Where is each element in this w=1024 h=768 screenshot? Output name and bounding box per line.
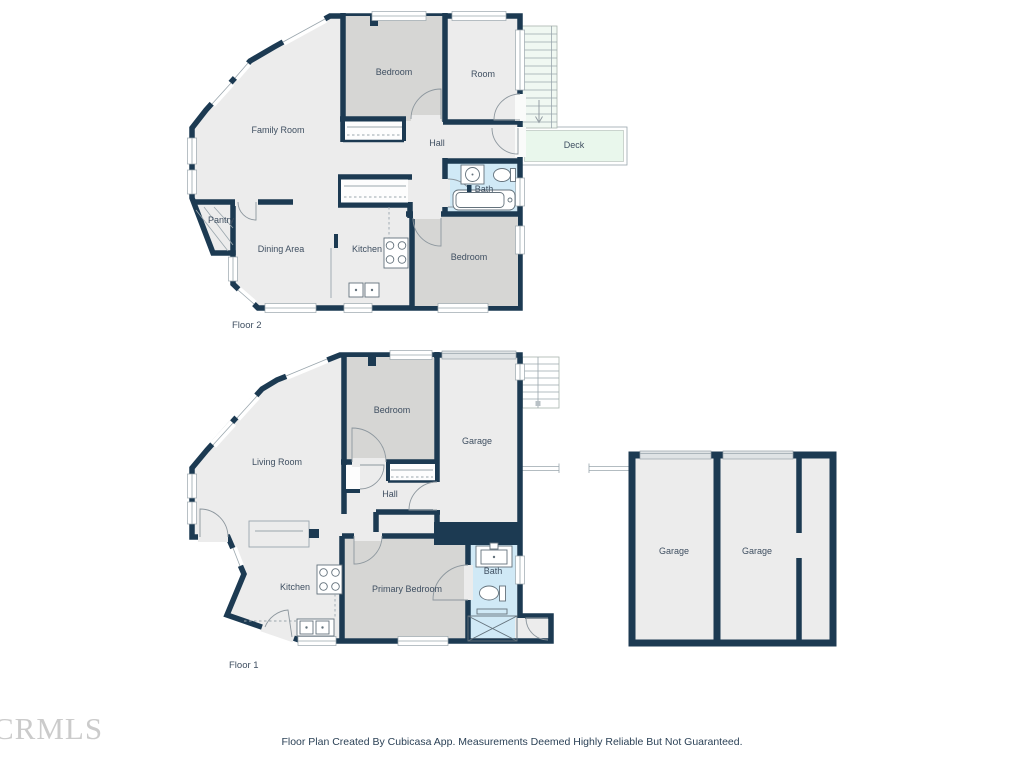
garage-building: Garage Garage xyxy=(632,451,833,643)
floor-2-plan: Family Room Bedroom Room Hall Deck Bath … xyxy=(188,12,628,332)
room-label-dining-area: Dining Area xyxy=(258,244,305,254)
door-gap xyxy=(515,618,525,638)
room-label-living-room: Living Room xyxy=(252,457,302,467)
door-gap xyxy=(441,179,450,207)
room-label-bath: Bath xyxy=(484,566,503,576)
room-label-bedroom-top: Bedroom xyxy=(376,67,413,77)
door-gap xyxy=(515,94,526,121)
door-gap xyxy=(433,482,442,510)
bedroom-closet xyxy=(388,462,437,482)
door-gap xyxy=(354,532,382,541)
room-label-garage-left: Garage xyxy=(659,546,689,556)
hall-closet xyxy=(346,465,360,489)
garage-door xyxy=(723,451,793,459)
door-gap xyxy=(352,458,386,467)
bath-door-stop xyxy=(467,185,472,192)
door-gap xyxy=(413,210,441,219)
room-label-kitchen: Kitchen xyxy=(280,582,310,592)
room-label-garage: Garage xyxy=(462,436,492,446)
room-label-kitchen: Kitchen xyxy=(352,244,382,254)
room-label-hall: Hall xyxy=(382,489,398,499)
room-label-bath: Bath xyxy=(475,184,494,194)
floor1-label: Floor 1 xyxy=(229,660,259,671)
stairs-marker xyxy=(536,401,541,406)
room-label-deck: Deck xyxy=(564,140,585,150)
garage-door xyxy=(442,351,516,359)
door-gap xyxy=(198,532,228,542)
floor-1-plan: Living Room Bedroom Garage Hall Kitchen … xyxy=(188,351,631,672)
room-label-hall: Hall xyxy=(429,138,445,148)
door-gap xyxy=(515,127,526,157)
hall-closet xyxy=(341,180,408,203)
wall-stub xyxy=(368,355,376,366)
door-gap xyxy=(411,115,441,123)
room-label-primary-bedroom: Primary Bedroom xyxy=(372,584,442,594)
exterior-stairs-floor1 xyxy=(522,357,559,408)
kitchen-sink xyxy=(297,619,334,636)
floor-plan-canvas: Family Room Bedroom Room Hall Deck Bath … xyxy=(0,0,1024,768)
room-label-room: Room xyxy=(471,69,495,79)
room-label-bedroom-bottom: Bedroom xyxy=(451,252,488,262)
garage-door xyxy=(640,451,711,459)
room-label-family-room: Family Room xyxy=(251,125,304,135)
toilet-icon xyxy=(480,586,499,600)
footer-disclaimer: Floor Plan Created By Cubicasa App. Meas… xyxy=(0,736,1024,748)
door-gap xyxy=(464,565,473,600)
floor2-label: Floor 2 xyxy=(232,320,262,331)
room-label-garage-right: Garage xyxy=(742,546,772,556)
garage-firewall xyxy=(434,522,522,545)
room-label-bedroom: Bedroom xyxy=(374,405,411,415)
toilet-icon xyxy=(494,169,511,182)
room-label-pantry: Pantry xyxy=(208,215,235,225)
exterior-stairs-floor2 xyxy=(521,26,557,128)
floor-plan-page: Family Room Bedroom Room Hall Deck Bath … xyxy=(0,0,1024,768)
bedroom-top-closet xyxy=(343,119,404,141)
fence-line xyxy=(521,464,630,474)
